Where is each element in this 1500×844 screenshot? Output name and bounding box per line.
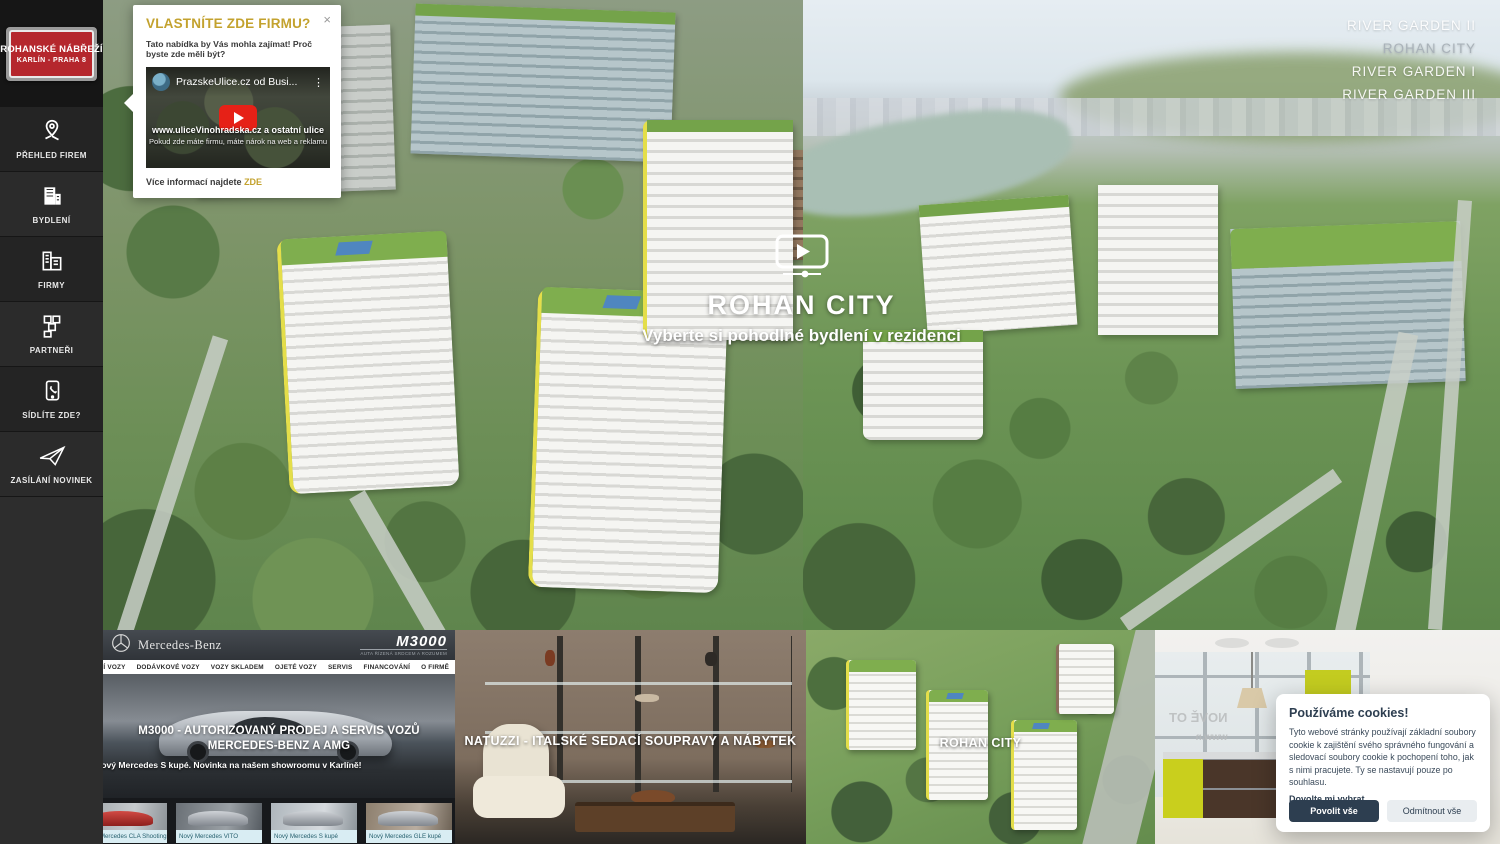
rooftop-pool — [336, 241, 373, 256]
green-roof — [647, 120, 793, 132]
coffee-table-shape — [575, 802, 735, 832]
m3000-wordmark: M3000 — [360, 634, 447, 650]
sidebar-filler — [0, 497, 103, 844]
mercedes-nav-dodavkove-vozy[interactable]: DODÁVKOVÉ VOZY — [137, 664, 200, 671]
vase-shape — [545, 650, 555, 666]
car-shape — [283, 811, 343, 826]
sidebar-item-sidlite-zde[interactable]: SÍDLÍTE ZDE? — [0, 367, 103, 431]
natuzzi-title: NATUZZI - ITALSKÉ SEDACÍ SOUPRAVY A NÁBY… — [455, 734, 806, 748]
island-side-shape — [1163, 759, 1203, 818]
cookie-body: Tyto webové stránky používají základní s… — [1289, 726, 1477, 789]
thumb-vito[interactable]: Nový Mercedes VITO — [176, 803, 262, 844]
mercedes-star-icon — [111, 633, 131, 658]
popup-title: VLASTNÍTE ZDE FIRMU? — [146, 16, 328, 31]
cookie-decline-button[interactable]: Odmítnout vše — [1387, 800, 1477, 822]
green-roof — [280, 231, 447, 266]
popup-pointer — [124, 93, 134, 113]
car-shape — [103, 811, 153, 826]
video-overlay-line1: www.uliceVinohradska.cz a ostatní ulice — [146, 125, 330, 135]
mercedes-thumbnails: Nový Mercedes CLA Shooting Brake Nový Me… — [103, 798, 433, 844]
thumb-image — [176, 803, 262, 830]
popup-footer: Více informací najdete ZDE — [146, 177, 328, 187]
building-shape — [410, 4, 675, 163]
mercedes-title: M3000 - AUTORIZOVANÝ PRODEJ A SERVIS VOZ… — [103, 724, 455, 754]
rooftop-pool — [946, 693, 964, 699]
green-roof — [1230, 221, 1461, 269]
cookie-consent-dialog: Používáme cookies! Tyto webové stránky p… — [1276, 694, 1490, 832]
rooftop-pool — [1032, 723, 1050, 729]
phone-icon — [39, 378, 65, 404]
decor-shape — [635, 694, 659, 702]
building-shape — [1098, 185, 1218, 335]
mercedes-wordmark: Mercedes-Benz — [138, 638, 222, 653]
cookie-buttons: Povolit vše Odmítnout vše — [1289, 800, 1477, 822]
nav-rohan-city[interactable]: ROHAN CITY — [1342, 37, 1476, 60]
window-sign-line2: www.n — [1169, 728, 1228, 748]
hero-title: ROHAN CITY — [542, 290, 1062, 321]
window-sign: NOVĚ OT www.n — [1169, 708, 1228, 748]
youtube-embed[interactable]: PrazskeUlice.cz od Busi... ⋮ www.uliceVi… — [146, 67, 330, 168]
close-icon[interactable]: × — [323, 13, 331, 26]
tile-rohan-city[interactable]: ROHAN CITY — [806, 630, 1155, 844]
green-roof — [849, 660, 916, 672]
sidebar-item-label: SÍDLÍTE ZDE? — [22, 411, 81, 420]
window-sign-line1: NOVĚ OT — [1169, 708, 1228, 728]
sidebar-item-label: PŘEHLED FIREM — [16, 151, 87, 160]
mercedes-nav-vozy-skladem[interactable]: VOZY SKLADEM — [211, 664, 264, 671]
hero-center: ROHAN CITY Vyberte si pohodlné bydlení v… — [542, 233, 1062, 346]
thumb-caption: Nový Mercedes S kupé — [271, 830, 357, 843]
sidebar-item-label: BYDLENÍ — [33, 216, 71, 225]
sidebar-item-prehled-firem[interactable]: PŘEHLED FIREM — [0, 107, 103, 171]
thumb-caption: Nový Mercedes GLE kupé — [366, 830, 452, 843]
office-buildings-icon — [39, 248, 65, 274]
map-pin-icon — [39, 118, 65, 144]
decor-shape — [705, 652, 717, 666]
thumb-gle-kupe[interactable]: Nový Mercedes GLE kupé — [366, 803, 452, 844]
cookie-title: Používáme cookies! — [1289, 706, 1477, 720]
ceiling-light-shape — [1215, 638, 1249, 648]
tile-mercedes[interactable]: Mercedes-Benz M3000 AUTA ŘÍZENÁ SRDCEM A… — [103, 630, 455, 844]
building-shape — [1230, 221, 1465, 389]
thumb-s-kupe[interactable]: Nový Mercedes S kupé — [271, 803, 357, 844]
mercedes-brand: Mercedes-Benz — [111, 633, 222, 658]
partner-tiles: Mercedes-Benz M3000 AUTA ŘÍZENÁ SRDCEM A… — [103, 630, 1500, 844]
popup-zde-link[interactable]: ZDE — [244, 177, 262, 187]
building-shape — [1056, 644, 1114, 714]
paper-plane-icon — [38, 443, 66, 469]
site-logo[interactable]: ROHANSKÉ NÁBŘEŽÍ KARLÍN - PRAHA 8 — [6, 27, 97, 81]
sidebar-nav: PŘEHLED FIREM BYDLENÍ — [0, 107, 103, 497]
popup-footer-text: Více informací najdete — [146, 177, 242, 187]
green-roof — [415, 4, 675, 25]
sidebar-item-label: ZASÍLÁNÍ NOVINEK — [11, 476, 93, 485]
thumb-caption: Nový Mercedes CLA Shooting Brake — [103, 830, 167, 843]
thumb-image — [103, 803, 167, 830]
car-shape — [378, 811, 438, 826]
sidebar: ROHANSKÉ NÁBŘEŽÍ KARLÍN - PRAHA 8 PŘEHLE… — [0, 0, 103, 844]
armchair-shape — [473, 776, 565, 818]
popup-intro: Tato nabídka by Vás mohla zajímat! Proč … — [146, 39, 328, 59]
pendant-lamp-shape — [1251, 652, 1253, 690]
apartment-building-icon — [39, 183, 65, 209]
car-shape — [188, 811, 248, 826]
sidebar-item-label: PARTNEŘI — [30, 346, 74, 355]
video-overlay-line2: Pokud zde máte firmu, máte nárok na web … — [146, 137, 330, 146]
nav-river-garden-1[interactable]: RIVER GARDEN I — [1342, 60, 1476, 83]
hero: RIVER GARDEN II ROHAN CITY RIVER GARDEN … — [103, 0, 1500, 630]
sidebar-item-zasilani-novinek[interactable]: ZASÍLÁNÍ NOVINEK — [0, 432, 103, 496]
rohan-tile-title: ROHAN CITY — [806, 736, 1155, 750]
mercedes-nav-servis[interactable]: SERVIS — [328, 664, 353, 671]
blocks-grid-icon — [39, 313, 65, 339]
mercedes-header: Mercedes-Benz M3000 AUTA ŘÍZENÁ SRDCEM A… — [103, 630, 455, 660]
logo-line1: ROHANSKÉ NÁBŘEŽÍ — [0, 44, 102, 55]
path-shape — [114, 335, 228, 630]
tile-kitchen-showroom[interactable]: NOVĚ OT www.n Používáme cookies! Tyto we… — [1155, 630, 1500, 844]
tile-natuzzi[interactable]: NATUZZI - ITALSKÉ SEDACÍ SOUPRAVY A NÁBY… — [455, 630, 806, 844]
project-nav: RIVER GARDEN II ROHAN CITY RIVER GARDEN … — [1342, 14, 1476, 106]
mercedes-nav-o-firme[interactable]: O FIRMĚ — [421, 664, 449, 671]
mercedes-nav-ojete-vozy[interactable]: OJETÉ VOZY — [275, 664, 317, 671]
owner-popup: × VLASTNÍTE ZDE FIRMU? Tato nabídka by V… — [133, 5, 341, 198]
video-title[interactable]: PrazskeUlice.cz od Busi... — [176, 76, 307, 88]
mercedes-subtitle: Nový Mercedes S kupé. Novinka na našem s… — [103, 760, 455, 770]
thumb-caption: Nový Mercedes VITO — [176, 830, 262, 843]
sidebar-item-partneri[interactable]: PARTNEŘI — [0, 302, 103, 366]
thumb-image — [271, 803, 357, 830]
road-shape — [1120, 469, 1342, 630]
green-roof — [929, 690, 988, 702]
ceiling-light-shape — [1265, 638, 1299, 648]
nav-river-garden-2[interactable]: RIVER GARDEN II — [1342, 14, 1476, 37]
channel-avatar — [152, 73, 170, 91]
mercedes-nav: OSOBNÍ VOZY DODÁVKOVÉ VOZY VOZY SKLADEM … — [103, 660, 455, 674]
m3000-logo: M3000 AUTA ŘÍZENÁ SRDCEM A ROZUMEM — [360, 634, 447, 656]
video-header: PrazskeUlice.cz od Busi... ⋮ — [146, 67, 330, 97]
thumb-image — [366, 803, 452, 830]
sidebar-item-bydleni[interactable]: BYDLENÍ — [0, 172, 103, 236]
building-shape — [863, 330, 983, 440]
more-icon[interactable]: ⋮ — [313, 76, 324, 89]
page: ROHANSKÉ NÁBŘEŽÍ KARLÍN - PRAHA 8 PŘEHLE… — [0, 0, 1500, 844]
sidebar-item-firmy[interactable]: FIRMY — [0, 237, 103, 301]
residential-tower — [276, 231, 459, 495]
street-sign: ROHANSKÉ NÁBŘEŽÍ KARLÍN - PRAHA 8 — [9, 30, 94, 78]
video-play-icon[interactable] — [774, 266, 830, 283]
hero-subtitle: Vyberte si pohodlné bydlení v rezidenci — [542, 326, 1062, 346]
cookie-accept-button[interactable]: Povolit vše — [1289, 800, 1379, 822]
mercedes-nav-osobni-vozy[interactable]: OSOBNÍ VOZY — [103, 664, 126, 671]
thumb-cla[interactable]: Nový Mercedes CLA Shooting Brake — [103, 803, 167, 844]
mercedes-nav-financovani[interactable]: FINANCOVÁNÍ — [364, 664, 411, 671]
logo-line2: KARLÍN - PRAHA 8 — [17, 57, 87, 64]
green-roof — [1014, 720, 1077, 732]
m3000-tagline: AUTA ŘÍZENÁ SRDCEM A ROZUMEM — [360, 651, 447, 656]
path-shape — [349, 490, 475, 630]
sidebar-item-label: FIRMY — [38, 281, 65, 290]
mercedes-nav-items: OSOBNÍ VOZY DODÁVKOVÉ VOZY VOZY SKLADEM … — [103, 663, 455, 671]
nav-river-garden-3[interactable]: RIVER GARDEN III — [1342, 83, 1476, 106]
